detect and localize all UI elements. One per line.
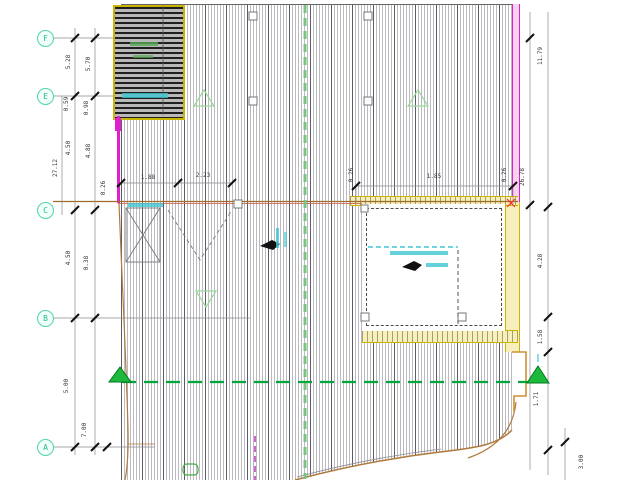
dimension-label: 5.28 bbox=[66, 55, 72, 69]
dimension-label: 4.88 bbox=[86, 144, 92, 158]
dimension-label: 1.58 bbox=[538, 330, 544, 344]
dimension-label: 4.50 bbox=[66, 251, 72, 265]
grid-leader-lines bbox=[53, 38, 250, 447]
dimension-label: 11.79 bbox=[538, 47, 544, 65]
grid-bubble-b: B bbox=[37, 310, 54, 327]
annotation-text-cyan bbox=[122, 93, 168, 98]
dimension-label: 1.85 bbox=[427, 174, 441, 180]
dimension-label: 0.38 bbox=[84, 256, 90, 270]
red-cross-tick bbox=[507, 199, 515, 207]
grid-bubble-f: F bbox=[37, 30, 54, 47]
dimension-label: 4.28 bbox=[538, 254, 544, 268]
annotation-text-cyan bbox=[276, 228, 279, 248]
dimension-label: 7.00 bbox=[82, 423, 88, 437]
green-u-symbol bbox=[183, 464, 198, 475]
annotation-text-green bbox=[133, 55, 153, 58]
dimension-label: 3.00 bbox=[579, 455, 585, 469]
magenta-fitting bbox=[115, 118, 121, 131]
opening-inner-dashes bbox=[368, 247, 458, 325]
annotation-text-green bbox=[130, 42, 158, 46]
roof-opening-squares bbox=[234, 12, 466, 321]
left-building-edge bbox=[119, 203, 128, 480]
annotation-text-cyan bbox=[284, 232, 287, 247]
slope-indicator-triangles bbox=[194, 90, 428, 307]
dimension-label: 0.26 bbox=[349, 168, 355, 182]
dimension-label: 0.26 bbox=[502, 168, 508, 182]
dimension-label: 0.59 bbox=[64, 97, 70, 111]
x-braced-box bbox=[126, 208, 232, 262]
grid-bubble-a: A bbox=[37, 439, 54, 456]
dimension-label: 0.98 bbox=[84, 101, 90, 115]
dimension-label: 2.23 bbox=[196, 173, 210, 179]
linework-overlay bbox=[0, 0, 640, 480]
grid-bubble-e: E bbox=[37, 88, 54, 105]
dimension-lines bbox=[62, 12, 565, 480]
annotation-text-cyan bbox=[128, 203, 163, 207]
dimension-label: 1.71 bbox=[534, 392, 540, 406]
section-cut-line bbox=[109, 366, 549, 383]
dimension-label: 4.50 bbox=[66, 141, 72, 155]
section-marker-left bbox=[109, 367, 131, 382]
annotation-text-cyan bbox=[390, 251, 448, 255]
roof-plan-canvas: F E C B A 5.28 5.70 0.59 0.98 4.50 4.88 … bbox=[0, 0, 640, 480]
grid-bubble-c: C bbox=[37, 202, 54, 219]
dimension-label: 26.78 bbox=[520, 168, 526, 186]
dimension-label: 1.88 bbox=[141, 175, 155, 181]
dimension-label: 27.12 bbox=[53, 159, 59, 177]
dimension-label: 5.00 bbox=[64, 379, 70, 393]
dimension-label: 5.70 bbox=[86, 57, 92, 71]
dimension-label: 0.26 bbox=[101, 181, 107, 195]
annotation-text-cyan bbox=[426, 263, 448, 267]
